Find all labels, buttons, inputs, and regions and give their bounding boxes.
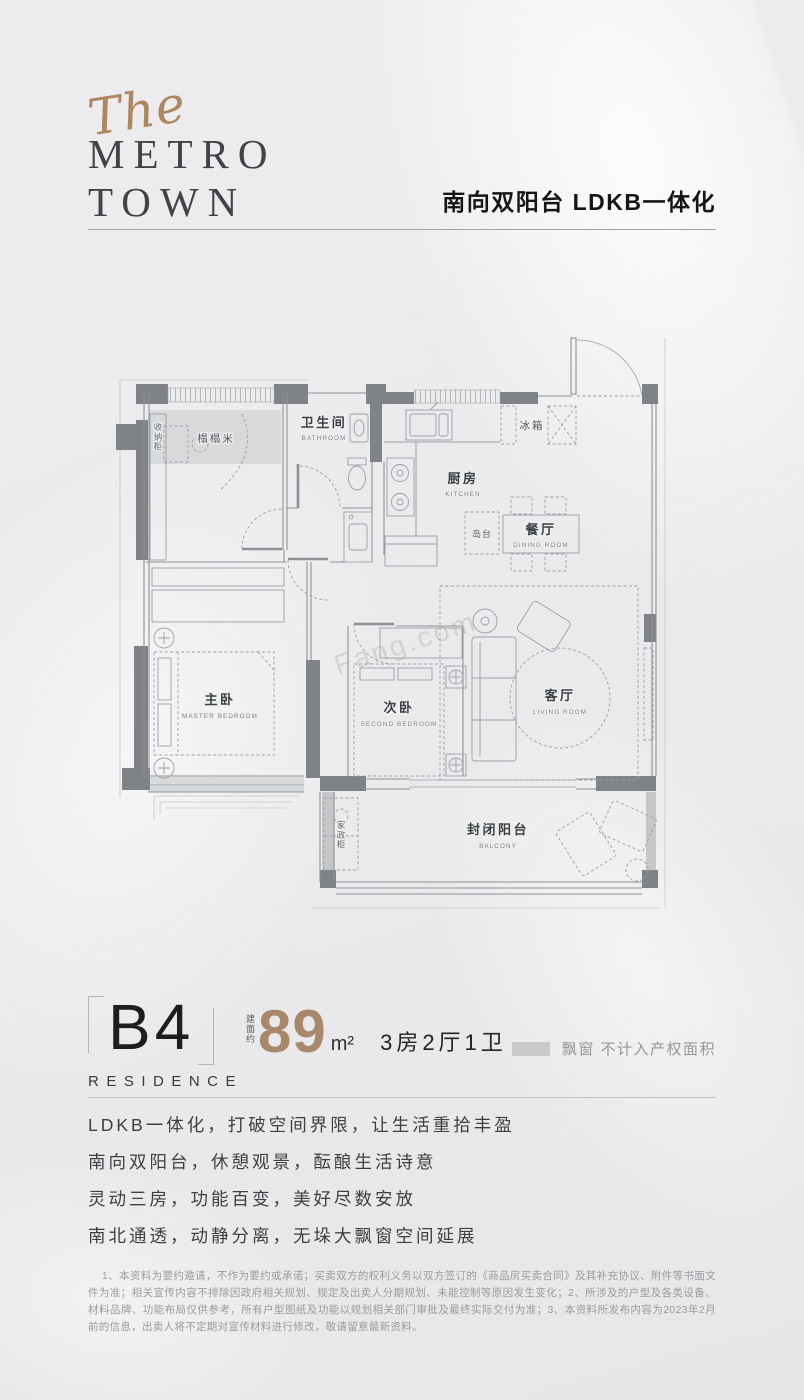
label-dining-en: DINING ROOM <box>513 542 568 549</box>
brand-logo: The METRO TOWN <box>88 96 348 226</box>
label-fridge: 冰箱 <box>520 419 545 432</box>
label-kitchen-cn: 厨房 <box>447 471 478 486</box>
floorplan-diagram: Fang.com 榻榻米 收纳柜 卫生间 BATHROOM 厨房 KITCHEN… <box>108 330 678 920</box>
page-title: 南向双阳台 LDKB一体化 <box>442 183 716 217</box>
bracket-right <box>198 1008 214 1065</box>
feature-line: LDKB一体化，打破空间界限，让生活重拾丰盈 <box>88 1116 515 1134</box>
area-prefix: 建面约 <box>245 1014 255 1048</box>
label-bathroom-cn: 卫生间 <box>301 415 348 430</box>
legend-label: 飘窗 不计入产权面积 <box>562 1038 716 1059</box>
bay-window-legend: 飘窗 不计入产权面积 <box>512 1038 716 1059</box>
legend-swatch <box>512 1042 550 1056</box>
unit-code-block: B4 RESIDENCE <box>88 996 243 1090</box>
bracket-left <box>88 996 104 1053</box>
feature-list: LDKB一体化，打破空间界限，让生活重拾丰盈 南向双阳台，休憩观景，酝酿生活诗意… <box>88 1116 515 1264</box>
label-housekeeping-cabinet: 家政柜 <box>337 820 346 850</box>
label-master-cn: 主卧 <box>204 692 235 707</box>
unit-type-label: RESIDENCE <box>88 1073 243 1090</box>
label-living-en: LIVING ROOM <box>533 709 587 716</box>
label-island: 岛台 <box>472 528 492 539</box>
label-living-cn: 客厅 <box>544 688 575 703</box>
area-value: 89 <box>258 1006 327 1058</box>
unit-code: B4 <box>108 996 194 1058</box>
poster-page: The METRO TOWN 南向双阳台 LDKB一体化 <box>0 0 804 1400</box>
brand-name-line1: METRO <box>88 130 277 178</box>
label-master-en: MASTER BEDROOM <box>182 713 258 720</box>
feature-line: 灵动三房，功能百变，美好尽数安放 <box>88 1190 515 1208</box>
feature-line: 南向双阳台，休憩观景，酝酿生活诗意 <box>88 1153 515 1171</box>
label-dining-cn: 餐厅 <box>524 522 556 537</box>
label-balcony-cn: 封闭阳台 <box>467 822 529 837</box>
label-second-cn: 次卧 <box>383 700 414 715</box>
unit-info-row: B4 RESIDENCE 建面约 89 m² 3房2厅1卫 飘窗 不计入产权面积 <box>88 996 716 1082</box>
unit-area-block: 建面约 89 m² 3房2厅1卫 <box>245 1006 507 1058</box>
brand-name-line2: TOWN <box>88 178 246 226</box>
label-second-en: SECOND BEDROOM <box>361 721 438 728</box>
balcony-furniture <box>324 798 657 881</box>
section-divider <box>88 1097 716 1098</box>
header-divider <box>88 229 716 230</box>
label-bathroom-en: BATHROOM <box>302 435 347 442</box>
disclaimer-text: 1、本资料为要约邀请，不作为要约或承诺；买卖双方的权利义务以双方签订的《商品房买… <box>88 1268 716 1336</box>
area-unit: m² <box>331 1033 354 1056</box>
label-balcony-en: BALCONY <box>479 843 517 850</box>
label-tatami: 榻榻米 <box>197 432 235 445</box>
layout-spec: 3房2厅1卫 <box>380 1025 507 1057</box>
feature-line: 南北通透，动静分离，无垛大飘窗空间延展 <box>88 1227 515 1245</box>
interior-doors <box>242 464 394 664</box>
bathroom-fixtures <box>344 414 372 562</box>
label-storage-cabinet: 收纳柜 <box>154 422 163 452</box>
label-kitchen-en: KITCHEN <box>445 491 480 498</box>
watermark: Fang.com <box>330 605 481 680</box>
entry-door <box>571 338 642 396</box>
window-bands <box>168 388 500 403</box>
